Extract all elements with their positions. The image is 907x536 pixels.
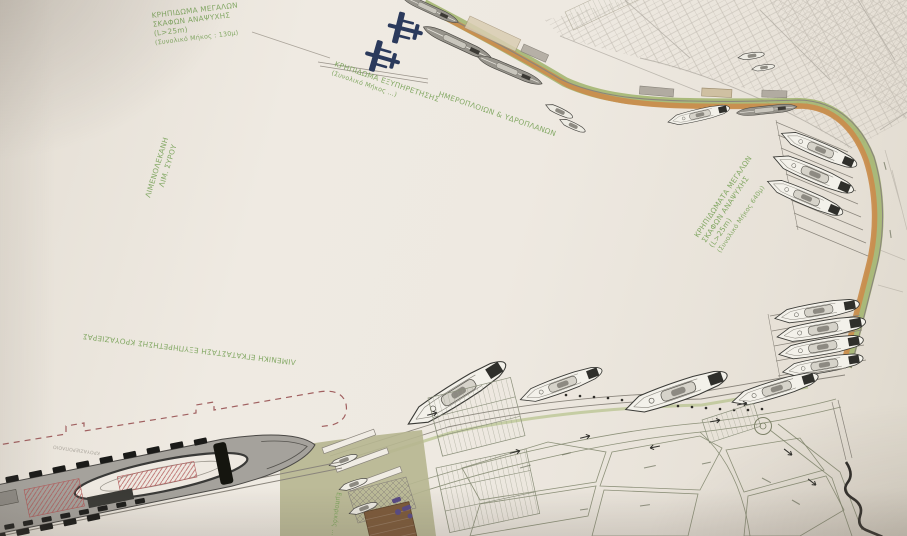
label-cruise-ship: ΚΡΟΥΑΖΙΕΡΟΠΛΟΙΟ: [52, 443, 100, 456]
label-harbor-basin: ΛΙΜΕΝΟΛΕΚΑΝΗ ΛΙΜ. ΣΥΡΟΥ: [143, 136, 179, 201]
label-cruise-terminal: ΛΙΜΕΝΙΚΗ ΕΓΚΑΤΑΣΤΑΣΗ ΕΞΥΠΗΡΕΤΗΣΗΣ ΚΡΟΥΑΖ…: [82, 332, 296, 367]
photographed-port-plan: ΚΡΗΠΙΔΩΜΑ ΜΕΓΑΛΩΝ ΣΚΑΦΩΝ ΑΝΑΨΥΧΗΣ (L>25m…: [0, 0, 907, 536]
seaplanes: [361, 9, 427, 78]
seaplane-icon: [384, 9, 427, 49]
moored-yacht: [518, 363, 605, 408]
port-plan-drawing: ΚΡΗΠΙΔΩΜΑ ΜΕΓΑΛΩΝ ΣΚΑΦΩΝ ΑΝΑΨΥΧΗΣ (L>25m…: [0, 0, 907, 536]
moored-yacht: [623, 365, 731, 418]
label-line: ΚΡΟΥΑΖΙΕΡΟΠΛΟΙΟ: [52, 443, 100, 456]
coastline: [845, 462, 886, 536]
label-leader-line: [252, 32, 330, 58]
ferry-boat: [476, 52, 544, 88]
east-yacht-cluster: [765, 126, 867, 379]
label-east-quay: ΚΡΗΠΙΔΩΜΑΤΑ ΜΕΓΑΛΩΝ ΣΚΑΦΩΝ ΑΝΑΨΥΧΗΣ (L>2…: [692, 154, 776, 254]
small-boat: [558, 117, 586, 135]
label-seaplane-quay-2: ΗΜΕΡΟΠΛΟΙΩΝ & ΥΔΡΟΠΛΑΝΩΝ: [437, 89, 557, 138]
label-line: ΗΜΕΡΟΠΛΟΙΩΝ & ΥΔΡΟΠΛΑΝΩΝ: [437, 89, 557, 138]
label-north-quay: ΚΡΗΠΙΔΩΜΑ ΜΕΓΑΛΩΝ ΣΚΑΦΩΝ ΑΝΑΨΥΧΗΣ (L>25m…: [151, 0, 241, 46]
label-line: ΛΙΜΕΝΙΚΗ ΕΓΚΑΤΑΣΤΑΣΗ ΕΞΥΠΗΡΕΤΗΣΗΣ ΚΡΟΥΑΖ…: [82, 332, 296, 367]
small-boat: [544, 102, 574, 121]
